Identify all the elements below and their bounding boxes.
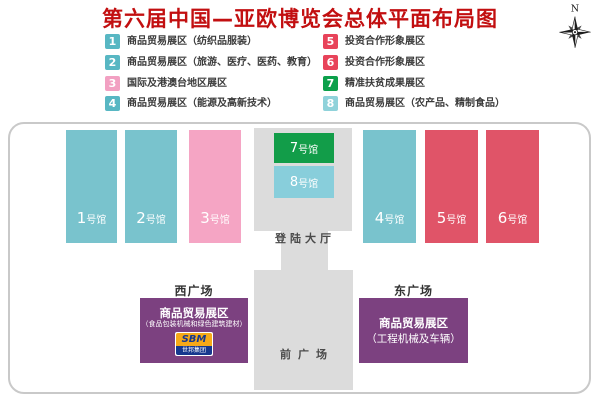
legend-item-8: 8 商品贸易展区（农产品、精制食品） <box>323 96 505 111</box>
front-plaza-label: 前广场 <box>254 346 353 362</box>
west-plaza-booth: 商品贸易展区 （食品包装机械和绿色建筑建材） SBM 世邦集团 <box>140 298 248 363</box>
legend-item-3: 3 国际及港澳台地区展区 <box>105 76 227 91</box>
west-booth-subtitle: （食品包装机械和绿色建筑建材） <box>142 320 247 329</box>
west-booth-title: 商品贸易展区 <box>160 306 229 320</box>
compass-north-letter: N <box>571 3 579 14</box>
hall-2-label: 2号馆 <box>125 208 177 227</box>
hall-7: 7号馆 <box>274 133 334 163</box>
legend-item-1: 1 商品贸易展区（纺织品服装） <box>105 34 257 49</box>
sbm-logo: SBM 世邦集团 <box>175 332 213 356</box>
legend-item-2: 2 商品贸易展区（旅游、医疗、医药、教育） <box>105 55 317 70</box>
hall-4-label: 4号馆 <box>363 208 416 227</box>
legend-label-5: 投资合作形象展区 <box>345 34 425 49</box>
hall-1-suffix: 号馆 <box>86 215 106 226</box>
legend-item-4: 4 商品贸易展区（能源及高新技术） <box>105 96 277 111</box>
hall-2: 2号馆 <box>125 130 177 243</box>
hall-1-label: 1号馆 <box>66 208 117 227</box>
hall-3-label: 3号馆 <box>189 208 241 227</box>
compass-rose-icon: N <box>556 2 594 54</box>
hall-1-number: 1 <box>77 209 87 227</box>
legend-item-7: 7 精准扶贫成果展区 <box>323 76 425 91</box>
legend-swatch-4: 4 <box>105 96 120 111</box>
landing-hall-label: 登陆大厅 <box>254 230 352 246</box>
legend-swatch-7: 7 <box>323 76 338 91</box>
east-plaza-booth: 商品贸易展区 （工程机械及车辆） <box>359 298 468 363</box>
hall-6: 6号馆 <box>486 130 539 243</box>
hall-2-suffix: 号馆 <box>146 215 166 226</box>
hall-4-number: 4 <box>375 209 385 227</box>
east-booth-subtitle: （工程机械及车辆） <box>366 332 461 346</box>
sbm-logo-text: SBM <box>176 333 212 346</box>
hall-4: 4号馆 <box>363 130 416 243</box>
legend-swatch-2: 2 <box>105 55 120 70</box>
east-booth-title: 商品贸易展区 <box>379 316 448 330</box>
hall-1: 1号馆 <box>66 130 117 243</box>
hall-3: 3号馆 <box>189 130 241 243</box>
hall-5-suffix: 号馆 <box>446 215 466 226</box>
hall-8: 8号馆 <box>274 166 334 198</box>
legend-swatch-6: 6 <box>323 55 338 70</box>
east-plaza-label: 东广场 <box>359 282 468 299</box>
hall-7-suffix: 号馆 <box>298 141 318 156</box>
hall-6-number: 6 <box>498 209 508 227</box>
hall-2-number: 2 <box>136 209 146 227</box>
legend-swatch-8: 8 <box>323 96 338 111</box>
floor-plan: 1号馆 2号馆 3号馆 4号馆 5号馆 6号馆 7号馆 8号馆 登陆大厅 前广场… <box>8 122 591 394</box>
page-title: 第六届中国—亚欧博览会总体平面布局图 <box>0 3 600 33</box>
hall-6-label: 6号馆 <box>486 208 539 227</box>
legend-label-4: 商品贸易展区（能源及高新技术） <box>127 96 277 111</box>
legend-label-6: 投资合作形象展区 <box>345 55 425 70</box>
legend-label-1: 商品贸易展区（纺织品服装） <box>127 34 257 49</box>
sbm-logo-subtext: 世邦集团 <box>176 346 212 355</box>
legend-swatch-3: 3 <box>105 76 120 91</box>
hall-8-number: 8 <box>290 175 298 190</box>
compass-icon: N <box>556 2 594 54</box>
legend-label-3: 国际及港澳台地区展区 <box>127 76 227 91</box>
hall-3-number: 3 <box>200 209 210 227</box>
hall-5-label: 5号馆 <box>425 208 478 227</box>
hall-5: 5号馆 <box>425 130 478 243</box>
front-plaza-area <box>254 270 353 390</box>
legend-label-7: 精准扶贫成果展区 <box>345 76 425 91</box>
hall-7-number: 7 <box>290 141 298 156</box>
hall-5-number: 5 <box>437 209 447 227</box>
hall-4-suffix: 号馆 <box>384 215 404 226</box>
legend-item-5: 5 投资合作形象展区 <box>323 34 425 49</box>
hall-8-suffix: 号馆 <box>298 175 318 190</box>
hall-3-suffix: 号馆 <box>210 215 230 226</box>
west-plaza-label: 西广场 <box>140 282 248 299</box>
legend-label-2: 商品贸易展区（旅游、医疗、医药、教育） <box>127 55 317 70</box>
hall-6-suffix: 号馆 <box>507 215 527 226</box>
legend-label-8: 商品贸易展区（农产品、精制食品） <box>345 96 505 111</box>
legend-swatch-1: 1 <box>105 34 120 49</box>
legend-swatch-5: 5 <box>323 34 338 49</box>
legend-item-6: 6 投资合作形象展区 <box>323 55 425 70</box>
